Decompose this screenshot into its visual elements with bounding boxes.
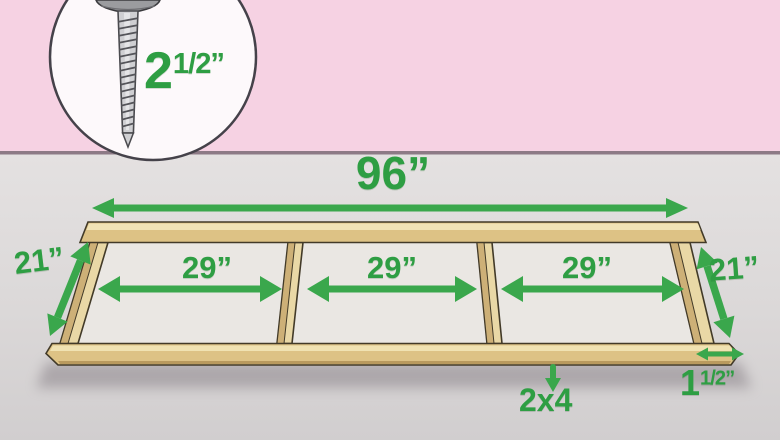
bottom-rail — [46, 344, 739, 366]
illustration: 21/2” 96” 29” 29” 29” 21” 21” 11/2” 2x4 — [0, 0, 780, 440]
thickness-fraction: 1/2 — [700, 368, 725, 390]
left-depth-label: 21” — [12, 242, 65, 279]
board-thickness-label: 11/2” — [680, 365, 735, 401]
thickness-unit: ” — [725, 368, 735, 390]
top-rail — [80, 222, 706, 243]
right-depth-label: 21” — [708, 251, 760, 285]
overall-width-label: 96” — [350, 150, 436, 196]
bay-width-label-2: 29” — [359, 252, 425, 283]
frame-shadow — [36, 362, 752, 388]
screw-length-label: 21/2” — [144, 45, 225, 97]
thickness-whole: 1 — [680, 362, 700, 403]
scene-canvas — [0, 0, 780, 440]
lumber-size-label: 2x4 — [519, 384, 572, 416]
bay-width-label-1: 29” — [174, 252, 240, 283]
bay-width-label-3: 29” — [554, 252, 620, 283]
screw-length-whole: 2 — [144, 42, 173, 100]
screw-length-unit: ” — [210, 48, 225, 80]
screw-length-fraction: 1/2 — [173, 48, 210, 80]
